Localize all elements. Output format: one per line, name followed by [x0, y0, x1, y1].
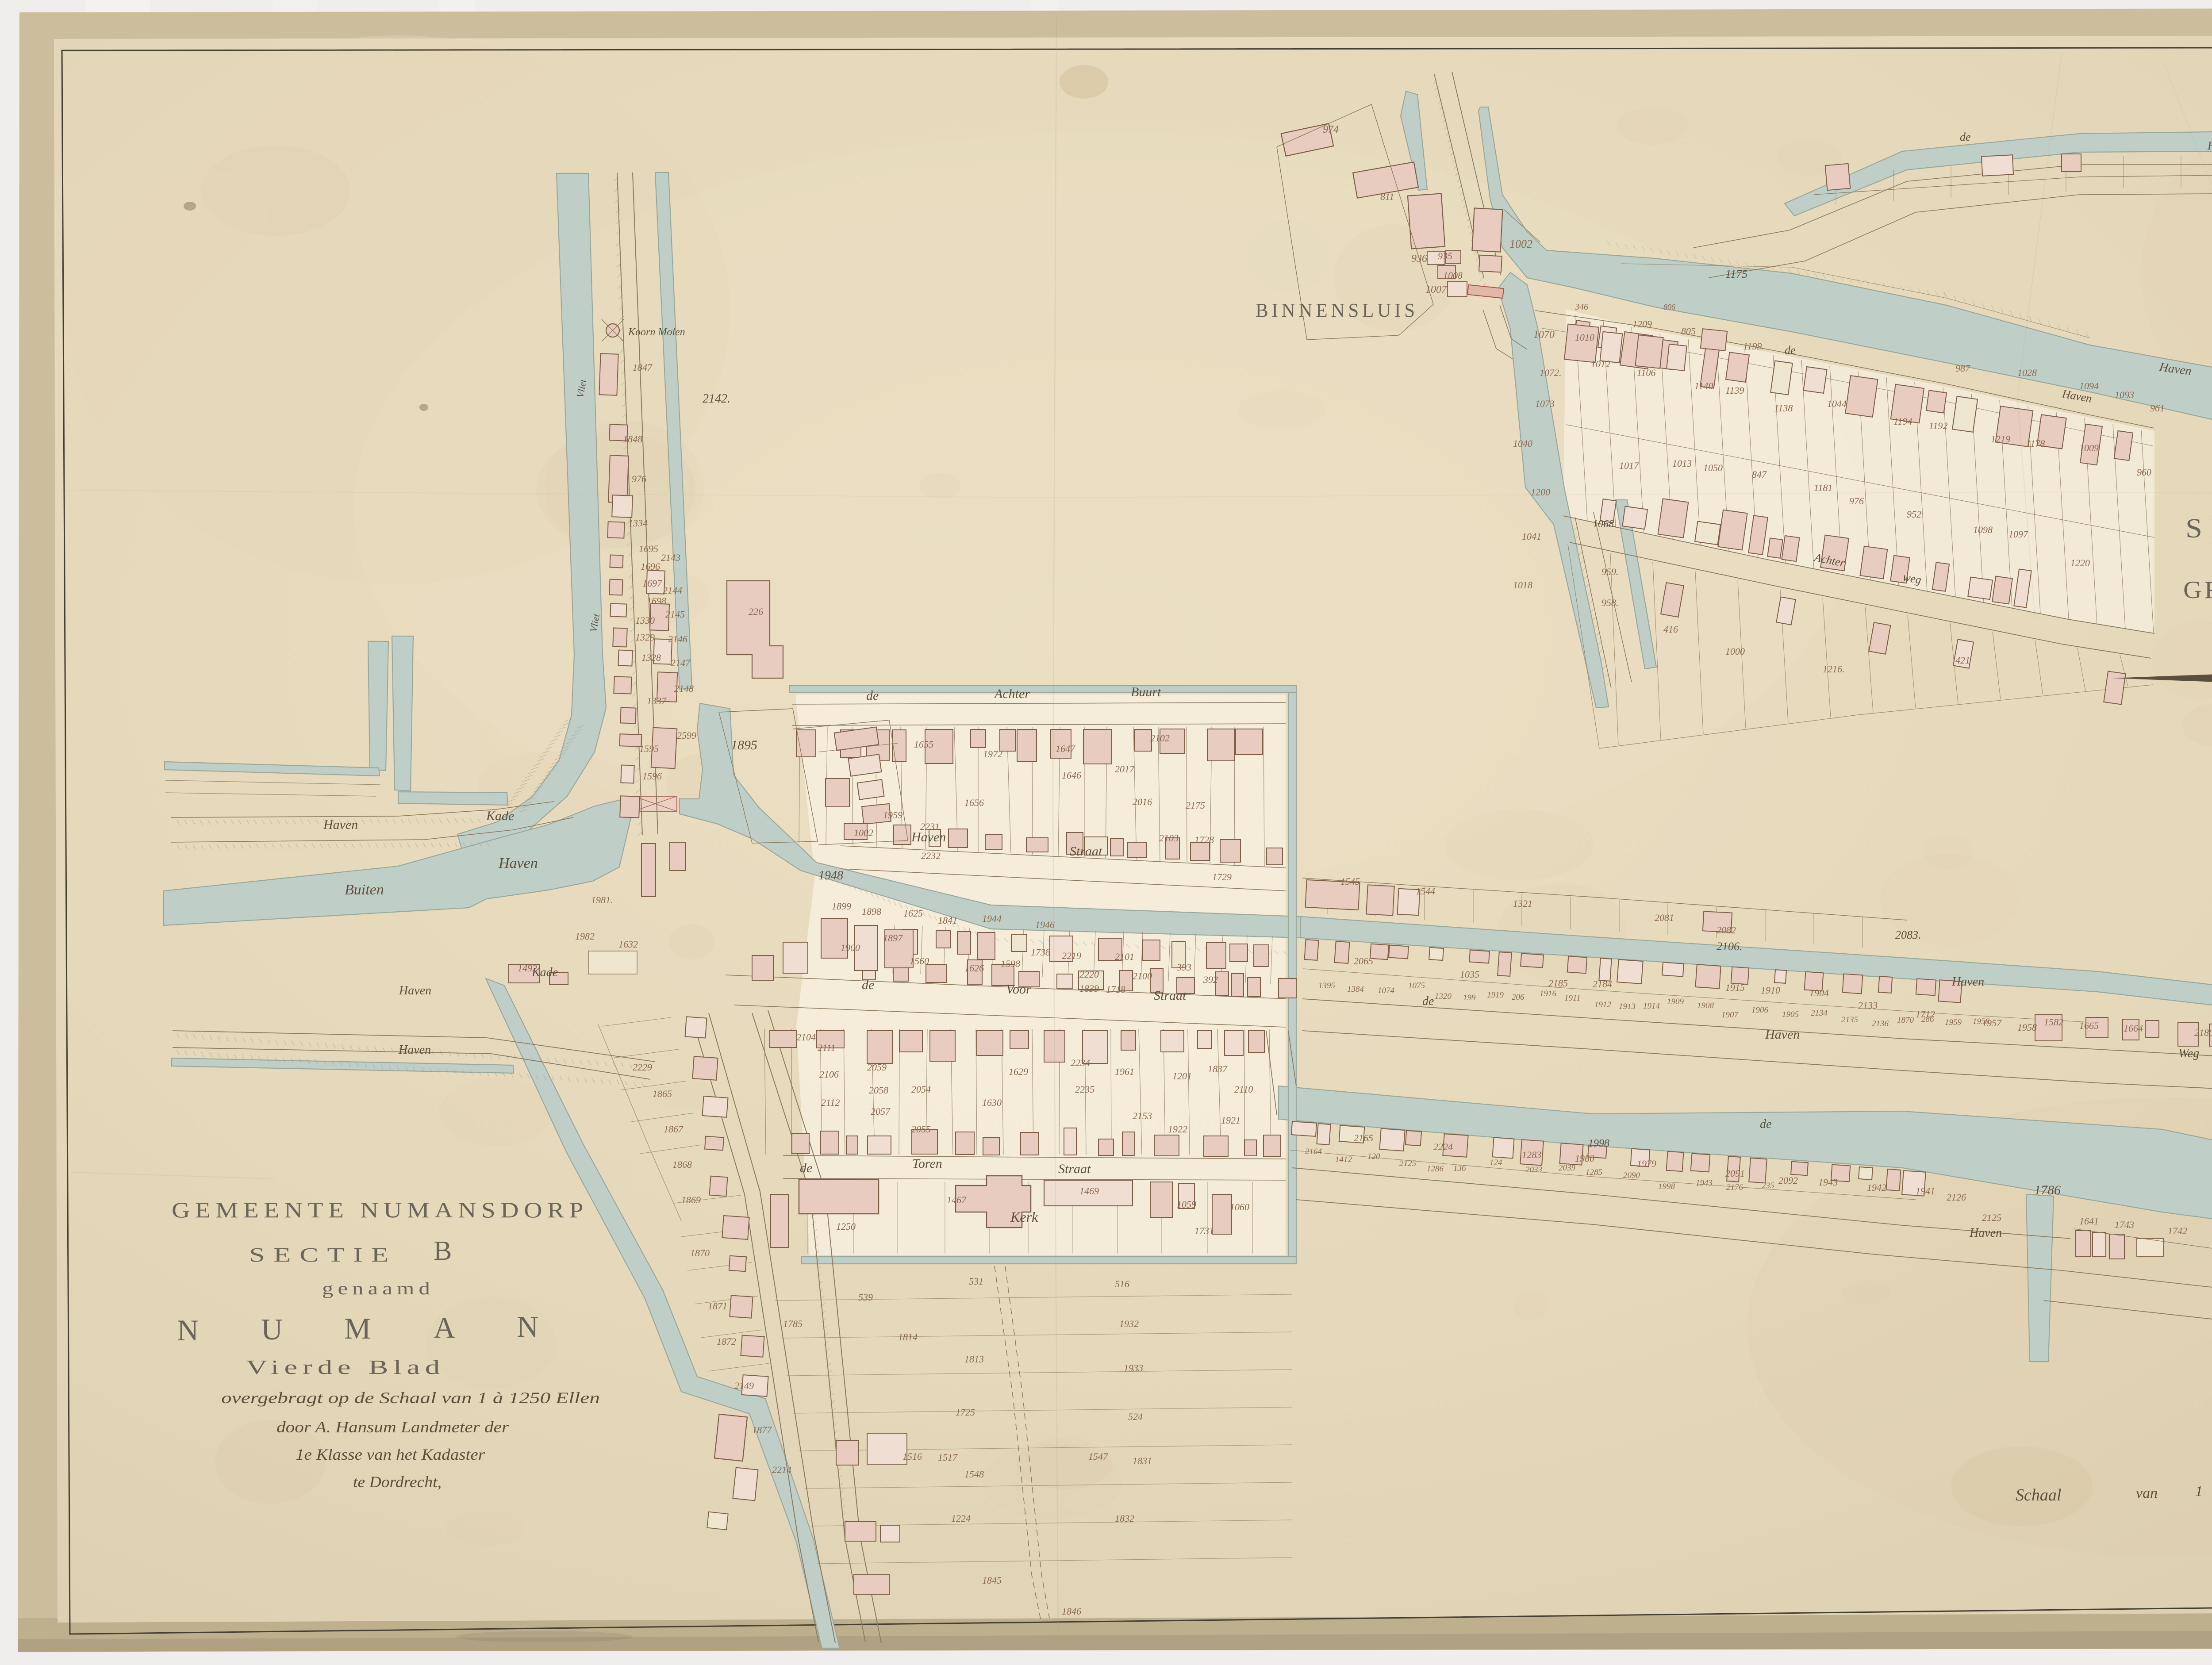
- svg-text:1560: 1560: [910, 955, 929, 967]
- svg-text:2142.: 2142.: [703, 392, 730, 406]
- svg-text:A: A: [434, 1311, 455, 1344]
- svg-text:1548: 1548: [964, 1469, 984, 1480]
- svg-text:1219: 1219: [1991, 434, 2010, 445]
- svg-text:1199.: 1199.: [1743, 341, 1764, 352]
- svg-text:1841: 1841: [938, 915, 957, 926]
- svg-text:2219: 2219: [1062, 950, 1081, 961]
- svg-text:2214: 2214: [772, 1464, 791, 1475]
- svg-text:1846: 1846: [1062, 1606, 1081, 1617]
- svg-text:1916: 1916: [1540, 989, 1557, 998]
- svg-text:1329: 1329: [635, 632, 655, 643]
- svg-text:1932: 1932: [1119, 1318, 1139, 1329]
- svg-text:1320: 1320: [1435, 992, 1452, 1001]
- svg-text:1959: 1959: [1945, 1018, 1962, 1027]
- svg-text:Straat: Straat: [1070, 844, 1102, 859]
- svg-text:1469: 1469: [1079, 1185, 1099, 1197]
- svg-text:2125: 2125: [1399, 1159, 1416, 1168]
- svg-text:1922: 1922: [1168, 1124, 1187, 1135]
- svg-text:136: 136: [1453, 1164, 1466, 1173]
- svg-text:1395: 1395: [1318, 981, 1335, 990]
- svg-text:1328: 1328: [641, 652, 661, 663]
- svg-text:1283: 1283: [1522, 1149, 1541, 1160]
- svg-text:1035: 1035: [1460, 969, 1479, 980]
- svg-text:2054: 2054: [911, 1084, 931, 1095]
- svg-text:1839: 1839: [1079, 983, 1099, 994]
- svg-text:524: 524: [1128, 1411, 1143, 1422]
- svg-text:1941: 1941: [1916, 1185, 1935, 1197]
- svg-text:346: 346: [1575, 302, 1588, 312]
- svg-text:2143: 2143: [661, 552, 680, 563]
- svg-text:1655: 1655: [914, 739, 933, 750]
- svg-text:2081: 2081: [1655, 912, 1674, 923]
- svg-text:2599: 2599: [677, 730, 696, 741]
- svg-text:2133: 2133: [1858, 1000, 1878, 1011]
- svg-text:1106: 1106: [1637, 367, 1655, 378]
- svg-text:1070: 1070: [1533, 329, 1555, 341]
- svg-text:2185: 2185: [1548, 978, 1568, 989]
- svg-text:1911: 1911: [1564, 994, 1581, 1003]
- svg-text:1018: 1018: [1513, 579, 1532, 591]
- svg-text:genaamd: genaamd: [322, 1278, 434, 1298]
- svg-text:206: 206: [1512, 993, 1525, 1002]
- svg-text:2135: 2135: [1841, 1015, 1858, 1024]
- svg-text:1516: 1516: [902, 1451, 922, 1462]
- svg-text:1: 1: [2195, 1483, 2203, 1500]
- svg-text:2106: 2106: [819, 1069, 839, 1080]
- svg-text:1286: 1286: [1427, 1164, 1444, 1174]
- svg-text:Straat: Straat: [1154, 988, 1187, 1003]
- svg-text:Haven: Haven: [1969, 1226, 2002, 1240]
- svg-text:2112: 2112: [821, 1097, 840, 1108]
- svg-text:516: 516: [1115, 1278, 1129, 1289]
- svg-text:BINNENSLUIS: BINNENSLUIS: [1256, 299, 1418, 321]
- svg-text:1946: 1946: [1035, 919, 1055, 930]
- svg-text:Haven: Haven: [398, 1043, 431, 1057]
- svg-text:2184: 2184: [1593, 978, 1612, 990]
- svg-text:1007: 1007: [1425, 284, 1447, 295]
- svg-text:1943: 1943: [1818, 1177, 1838, 1188]
- svg-text:te Dordrecht,: te Dordrecht,: [353, 1473, 442, 1491]
- svg-text:1595: 1595: [639, 743, 659, 754]
- svg-text:1074: 1074: [1378, 986, 1395, 995]
- svg-text:1093: 1093: [2115, 389, 2134, 400]
- svg-text:2234: 2234: [1071, 1057, 1090, 1068]
- svg-text:2106.: 2106.: [1717, 940, 1743, 953]
- svg-text:B: B: [434, 1236, 452, 1266]
- svg-text:1696: 1696: [641, 561, 660, 572]
- svg-text:2039: 2039: [1559, 1163, 1576, 1173]
- svg-text:2144: 2144: [663, 585, 682, 596]
- svg-text:de: de: [800, 1161, 812, 1175]
- svg-text:Vierde Blad: Vierde Blad: [246, 1356, 445, 1378]
- svg-text:1906: 1906: [1751, 1005, 1769, 1015]
- svg-text:421: 421: [1955, 655, 1970, 666]
- svg-text:1785: 1785: [783, 1318, 803, 1329]
- svg-text:2058: 2058: [869, 1085, 888, 1096]
- svg-text:1728: 1728: [1194, 834, 1214, 845]
- svg-text:2220: 2220: [1079, 969, 1099, 980]
- svg-text:976: 976: [632, 473, 646, 484]
- svg-text:2126: 2126: [1947, 1192, 1966, 1203]
- svg-text:GEMEENTE NUMANSDORP: GEMEENTE NUMANSDORP: [172, 1197, 588, 1222]
- svg-text:1813: 1813: [964, 1354, 984, 1365]
- svg-text:392: 392: [1203, 974, 1218, 985]
- svg-text:1665: 1665: [2079, 1020, 2099, 1031]
- svg-text:1848: 1848: [623, 434, 642, 445]
- svg-text:SECTIE: SECTIE: [2185, 514, 2212, 544]
- svg-text:1998: 1998: [1588, 1138, 1609, 1149]
- svg-text:2134: 2134: [1811, 1009, 1828, 1018]
- svg-text:1008: 1008: [1443, 270, 1463, 281]
- svg-text:Koorn Molen: Koorn Molen: [628, 326, 685, 338]
- svg-text:1948: 1948: [818, 869, 843, 882]
- svg-text:1140: 1140: [1694, 380, 1713, 391]
- svg-text:811: 811: [1380, 191, 1394, 202]
- svg-text:Haven: Haven: [498, 855, 538, 871]
- svg-text:935: 935: [1438, 250, 1452, 261]
- svg-text:1899: 1899: [832, 901, 851, 912]
- svg-text:1847: 1847: [633, 362, 653, 373]
- svg-text:M: M: [344, 1312, 371, 1345]
- svg-text:1201: 1201: [1172, 1070, 1192, 1082]
- svg-text:1979: 1979: [1637, 1158, 1656, 1169]
- svg-text:1321: 1321: [1513, 898, 1532, 909]
- svg-text:2057: 2057: [871, 1106, 891, 1117]
- svg-text:1060: 1060: [1230, 1201, 1249, 1212]
- svg-text:1625: 1625: [903, 908, 923, 919]
- svg-text:1944: 1944: [982, 913, 1002, 924]
- svg-text:N: N: [517, 1310, 538, 1343]
- svg-text:1010: 1010: [1575, 332, 1594, 343]
- svg-text:1216.: 1216.: [1823, 664, 1845, 675]
- svg-text:1664: 1664: [2124, 1023, 2143, 1034]
- svg-text:2175: 2175: [1186, 800, 1205, 811]
- svg-text:1698: 1698: [647, 595, 666, 606]
- svg-text:124: 124: [1490, 1158, 1502, 1167]
- svg-text:1467: 1467: [947, 1194, 967, 1205]
- svg-text:959.: 959.: [1601, 566, 1619, 577]
- svg-text:2111: 2111: [818, 1042, 836, 1053]
- svg-text:2231: 2231: [920, 821, 940, 832]
- svg-text:de: de: [1960, 130, 1971, 143]
- svg-text:976: 976: [1849, 495, 1864, 506]
- svg-text:1334: 1334: [628, 518, 648, 529]
- svg-text:Haven: Haven: [2207, 139, 2212, 152]
- svg-text:de: de: [1422, 994, 1434, 1008]
- svg-text:1814: 1814: [898, 1331, 918, 1343]
- svg-text:1097: 1097: [2008, 529, 2028, 540]
- svg-text:1598: 1598: [1001, 958, 1020, 969]
- svg-text:2235: 2235: [1075, 1084, 1094, 1095]
- svg-text:1181: 1181: [1814, 482, 1832, 493]
- svg-text:1742: 1742: [2168, 1225, 2187, 1236]
- svg-text:1980: 1980: [1575, 1153, 1594, 1164]
- svg-text:961: 961: [2150, 403, 2165, 414]
- svg-text:2016: 2016: [1133, 796, 1152, 807]
- svg-text:1933: 1933: [1124, 1362, 1143, 1373]
- svg-text:1943: 1943: [1696, 1178, 1713, 1188]
- svg-text:199: 199: [1463, 993, 1476, 1002]
- svg-text:2083.: 2083.: [1895, 928, 1921, 941]
- svg-text:531: 531: [969, 1276, 983, 1287]
- svg-text:1072.: 1072.: [1540, 367, 1562, 378]
- svg-text:1908: 1908: [1697, 1001, 1714, 1010]
- svg-text:Toren: Toren: [912, 1156, 942, 1171]
- svg-text:2100: 2100: [1133, 971, 1152, 982]
- svg-text:2224: 2224: [1433, 1141, 1453, 1152]
- svg-text:1012: 1012: [1591, 358, 1610, 369]
- svg-text:1059: 1059: [1177, 1199, 1196, 1210]
- svg-text:2033: 2033: [1525, 1165, 1542, 1174]
- svg-text:805: 805: [1681, 326, 1696, 337]
- svg-text:1337: 1337: [647, 695, 667, 706]
- svg-text:2165: 2165: [1354, 1132, 1373, 1143]
- svg-text:1910: 1910: [1761, 985, 1780, 996]
- svg-text:1626: 1626: [964, 963, 984, 974]
- svg-text:Buurt: Buurt: [1131, 685, 1161, 699]
- svg-text:1786: 1786: [2034, 1183, 2061, 1197]
- svg-text:1909: 1909: [1667, 997, 1684, 1006]
- svg-text:1867: 1867: [664, 1124, 684, 1135]
- svg-text:1731: 1731: [1194, 1225, 1214, 1236]
- svg-text:1544: 1544: [1416, 886, 1435, 897]
- svg-text:1942: 1942: [1867, 1182, 1886, 1193]
- svg-text:1002: 1002: [1509, 238, 1532, 250]
- svg-text:1718: 1718: [1106, 984, 1125, 995]
- svg-text:1872: 1872: [717, 1336, 736, 1347]
- svg-text:2148: 2148: [674, 683, 694, 694]
- svg-text:de: de: [1785, 344, 1796, 357]
- svg-text:1998: 1998: [1658, 1182, 1675, 1191]
- svg-text:1330: 1330: [635, 615, 655, 626]
- svg-text:1729: 1729: [1212, 871, 1232, 882]
- svg-text:226: 226: [749, 606, 763, 617]
- svg-text:1959: 1959: [883, 809, 902, 821]
- svg-text:Haven: Haven: [1765, 1027, 1800, 1042]
- svg-text:1629: 1629: [1009, 1066, 1028, 1077]
- svg-text:286: 286: [1921, 1015, 1934, 1024]
- svg-text:1094: 1094: [2079, 380, 2099, 391]
- svg-text:1738: 1738: [1031, 947, 1050, 958]
- svg-text:1921: 1921: [1221, 1115, 1240, 1126]
- svg-text:2229: 2229: [633, 1062, 652, 1073]
- svg-text:1224: 1224: [951, 1513, 971, 1524]
- svg-text:1285: 1285: [1586, 1168, 1602, 1177]
- svg-text:Kerk: Kerk: [1010, 1209, 1038, 1225]
- svg-text:1139: 1139: [1725, 385, 1744, 396]
- svg-text:1919: 1919: [1487, 990, 1504, 1000]
- svg-text:Kade: Kade: [486, 809, 514, 823]
- svg-text:Straat: Straat: [1058, 1162, 1091, 1176]
- svg-text:1178: 1178: [2026, 438, 2045, 449]
- svg-text:1656: 1656: [964, 797, 984, 808]
- svg-text:1646: 1646: [1062, 770, 1081, 781]
- svg-text:2232: 2232: [921, 850, 941, 861]
- svg-text:de: de: [862, 978, 874, 992]
- svg-text:958.: 958.: [1601, 597, 1619, 608]
- svg-text:2101: 2101: [1115, 951, 1134, 962]
- svg-text:2147: 2147: [671, 657, 691, 668]
- svg-text:2090: 2090: [1623, 1171, 1640, 1180]
- svg-text:1545: 1545: [1340, 876, 1360, 887]
- svg-text:1831: 1831: [1133, 1455, 1152, 1466]
- svg-text:1075: 1075: [1408, 981, 1425, 990]
- svg-text:235: 235: [1762, 1181, 1774, 1190]
- svg-text:1632: 1632: [618, 939, 638, 950]
- svg-text:Voor: Voor: [1006, 982, 1031, 997]
- svg-text:1870: 1870: [1897, 1016, 1914, 1025]
- svg-text:SECTIE: SECTIE: [249, 1243, 397, 1266]
- svg-text:2136: 2136: [1872, 1019, 1889, 1028]
- svg-text:de: de: [866, 688, 879, 703]
- svg-text:2180: 2180: [2194, 1027, 2212, 1038]
- svg-text:1547: 1547: [1088, 1451, 1108, 1462]
- svg-text:1017: 1017: [1619, 460, 1639, 471]
- svg-text:1209: 1209: [1632, 318, 1652, 330]
- svg-text:2092: 2092: [1778, 1175, 1798, 1186]
- svg-text:1013: 1013: [1672, 458, 1692, 469]
- svg-text:1412: 1412: [1335, 1155, 1352, 1164]
- svg-text:Buiten: Buiten: [345, 882, 384, 898]
- svg-text:1914: 1914: [1643, 1001, 1660, 1011]
- svg-text:1e Klasse van het Kadaster: 1e Klasse van het Kadaster: [296, 1446, 485, 1463]
- svg-text:1961: 1961: [1115, 1066, 1134, 1077]
- svg-text:U: U: [261, 1312, 283, 1346]
- svg-text:1098: 1098: [1973, 524, 1993, 535]
- svg-text:2164: 2164: [1305, 1147, 1322, 1156]
- svg-text:2104: 2104: [796, 1032, 816, 1043]
- svg-text:1384: 1384: [1347, 985, 1364, 994]
- svg-text:1044: 1044: [1827, 398, 1847, 409]
- svg-text:1220: 1220: [2070, 557, 2090, 568]
- svg-text:120: 120: [1367, 1152, 1380, 1161]
- svg-text:1868: 1868: [672, 1159, 692, 1170]
- svg-text:952: 952: [1907, 509, 1921, 520]
- svg-text:1913: 1913: [1619, 1002, 1636, 1011]
- svg-text:1865: 1865: [653, 1088, 672, 1099]
- svg-text:1041: 1041: [1522, 531, 1541, 542]
- svg-text:1905: 1905: [1782, 1010, 1799, 1019]
- svg-text:2146: 2146: [668, 633, 687, 645]
- svg-text:1832: 1832: [1115, 1513, 1134, 1524]
- svg-text:1897: 1897: [883, 932, 903, 944]
- svg-text:987: 987: [1955, 363, 1970, 374]
- svg-text:1900: 1900: [841, 942, 860, 953]
- svg-text:847: 847: [1752, 469, 1767, 480]
- svg-text:1050: 1050: [1703, 462, 1723, 473]
- svg-text:2059: 2059: [867, 1062, 887, 1073]
- svg-text:N: N: [177, 1313, 199, 1347]
- svg-text:2082: 2082: [1717, 925, 1736, 936]
- svg-text:1871: 1871: [708, 1301, 727, 1312]
- svg-text:1250: 1250: [836, 1221, 856, 1232]
- svg-text:1725: 1725: [956, 1407, 975, 1418]
- svg-text:1837: 1837: [1208, 1063, 1228, 1074]
- svg-text:2110: 2110: [1234, 1084, 1253, 1095]
- svg-text:2153: 2153: [1133, 1110, 1152, 1121]
- svg-text:1200: 1200: [1531, 487, 1550, 498]
- svg-text:1695: 1695: [639, 543, 658, 554]
- svg-text:Haven: Haven: [399, 984, 431, 997]
- svg-text:1982: 1982: [575, 931, 595, 942]
- svg-text:539: 539: [858, 1292, 873, 1303]
- svg-text:1958: 1958: [1973, 1017, 1990, 1026]
- svg-text:1877: 1877: [752, 1424, 772, 1435]
- svg-text:1904: 1904: [1809, 987, 1829, 998]
- svg-text:1138: 1138: [1774, 403, 1793, 414]
- svg-text:1068.: 1068.: [1593, 518, 1617, 530]
- svg-text:1895: 1895: [731, 738, 757, 752]
- svg-text:2125: 2125: [1982, 1212, 2001, 1223]
- svg-text:1492: 1492: [518, 963, 537, 974]
- svg-text:1972: 1972: [983, 748, 1002, 760]
- svg-text:2149: 2149: [734, 1380, 754, 1391]
- svg-text:Haven: Haven: [323, 817, 358, 832]
- svg-text:1192: 1192: [1929, 420, 1947, 431]
- svg-text:door A. Hansum Landmeter der: door A. Hansum Landmeter der: [276, 1418, 509, 1436]
- svg-text:GROOT-KROMSTRYEN: GROOT-KROMSTRYEN: [2183, 576, 2212, 604]
- svg-text:806: 806: [1663, 303, 1675, 311]
- svg-text:393: 393: [1176, 962, 1191, 973]
- svg-text:1915: 1915: [1725, 982, 1745, 993]
- svg-text:1845: 1845: [982, 1575, 1002, 1586]
- svg-text:2145: 2145: [665, 609, 685, 620]
- svg-text:1002: 1002: [854, 827, 873, 838]
- svg-text:Achter: Achter: [994, 687, 1030, 701]
- svg-text:van: van: [2136, 1485, 2158, 1501]
- svg-text:1073: 1073: [1535, 398, 1555, 409]
- svg-text:1647: 1647: [1056, 743, 1075, 754]
- svg-text:1000: 1000: [1725, 646, 1745, 657]
- svg-text:416: 416: [1663, 624, 1678, 635]
- svg-text:Schaal: Schaal: [2016, 1486, 2061, 1504]
- svg-text:1582: 1582: [2044, 1017, 2063, 1028]
- svg-text:2065: 2065: [1354, 955, 1373, 967]
- svg-text:960: 960: [2137, 467, 2151, 478]
- svg-text:1040: 1040: [1513, 438, 1532, 449]
- svg-text:1907: 1907: [1721, 1010, 1739, 1020]
- svg-text:974: 974: [1323, 124, 1339, 135]
- svg-text:1981.: 1981.: [591, 894, 613, 905]
- svg-text:2055: 2055: [911, 1124, 931, 1135]
- svg-text:1697: 1697: [642, 578, 662, 589]
- svg-text:1743: 1743: [2115, 1219, 2134, 1230]
- svg-text:1870: 1870: [690, 1247, 710, 1258]
- svg-text:2017: 2017: [1115, 763, 1135, 775]
- svg-text:de: de: [1760, 1117, 1771, 1131]
- svg-text:overgebragt op de Schaal van 1: overgebragt op de Schaal van 1 à 1250 El…: [221, 1389, 600, 1407]
- svg-text:1958: 1958: [2017, 1022, 2037, 1033]
- svg-text:1517: 1517: [938, 1452, 958, 1463]
- svg-text:936: 936: [1411, 253, 1427, 265]
- svg-text:2176: 2176: [1726, 1183, 1743, 1192]
- svg-text:2103: 2103: [1159, 832, 1179, 844]
- svg-text:1898: 1898: [862, 906, 881, 917]
- svg-text:2091: 2091: [1725, 1168, 1745, 1179]
- svg-text:Haven: Haven: [1951, 975, 1984, 989]
- svg-text:Weg: Weg: [2178, 1047, 2199, 1060]
- svg-text:2102: 2102: [1150, 733, 1170, 744]
- svg-text:1175: 1175: [1725, 268, 1747, 280]
- svg-text:1596: 1596: [642, 771, 662, 782]
- svg-text:1009: 1009: [2079, 442, 2099, 453]
- svg-text:1869: 1869: [681, 1194, 701, 1205]
- svg-text:1630: 1630: [982, 1097, 1002, 1108]
- svg-text:1641: 1641: [2079, 1216, 2099, 1227]
- svg-text:1912: 1912: [1594, 1000, 1612, 1009]
- svg-text:1194: 1194: [1893, 416, 1912, 427]
